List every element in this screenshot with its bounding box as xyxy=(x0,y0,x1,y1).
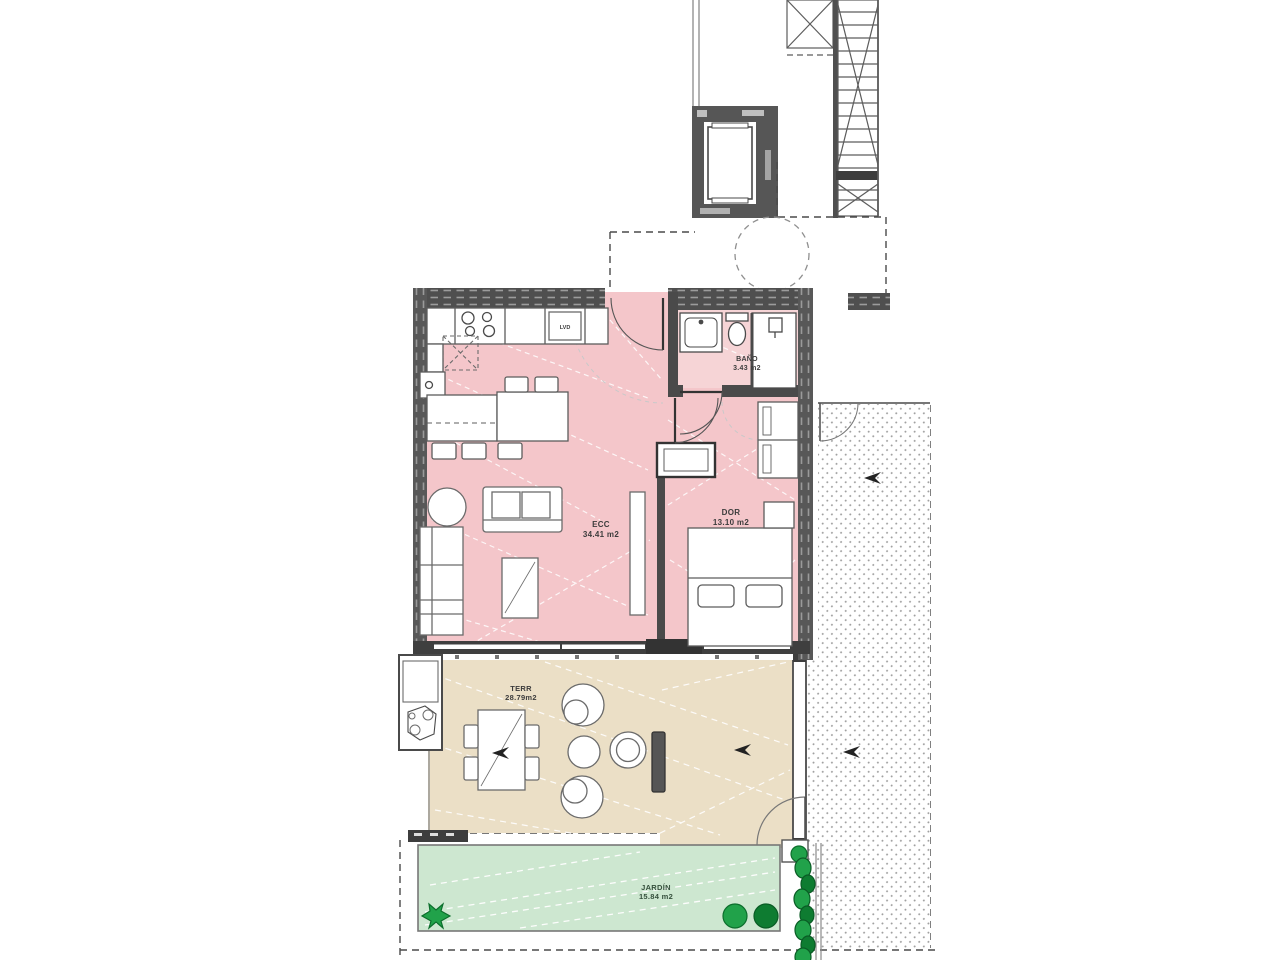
elevator-car xyxy=(708,127,752,199)
dining-chair xyxy=(432,443,456,459)
terrace-right-wall xyxy=(793,652,806,848)
elevator-door-2 xyxy=(712,198,748,203)
top-wall-fragment xyxy=(848,293,890,310)
outdoor-chair xyxy=(464,757,478,780)
garden-bush xyxy=(754,904,778,928)
pillow xyxy=(746,585,782,607)
wardrobe xyxy=(758,402,798,478)
lounge-chair xyxy=(568,736,600,768)
outdoor-chair xyxy=(525,725,539,748)
outdoor-chair xyxy=(464,725,478,748)
garden-area: 15.84 m2 xyxy=(639,892,673,901)
bathroom-area: 3.43 m2 xyxy=(733,365,761,372)
elevator-block xyxy=(692,106,778,218)
patio-circle xyxy=(735,217,809,291)
neighbor-dotted-area xyxy=(806,403,930,948)
dining-chair xyxy=(498,443,522,459)
dining-chair xyxy=(535,377,558,392)
pillow xyxy=(698,585,734,607)
floorplan-drawing: ECC 34.41 m2 DOR 13.10 m2 BAÑO 3.43 m2 T… xyxy=(0,0,1280,960)
planter xyxy=(652,732,665,792)
terrace-label: TERR xyxy=(510,684,532,693)
stair-landing xyxy=(836,171,878,180)
bath-west-wall xyxy=(668,292,678,390)
side-table-top xyxy=(617,739,640,762)
bed xyxy=(688,528,792,646)
living-area: 34.41 m2 xyxy=(583,530,619,539)
garden-label: JARDÍN xyxy=(641,883,671,892)
dining-table xyxy=(497,392,568,441)
sofa xyxy=(483,487,562,532)
shower xyxy=(752,313,796,388)
washer-label: LVD xyxy=(560,325,571,331)
living-label: ECC xyxy=(592,520,610,529)
lounge-cushion xyxy=(563,779,587,803)
round-chair xyxy=(428,488,466,526)
kitchen-island xyxy=(427,395,497,441)
tv-unit xyxy=(630,492,645,615)
stair-wall xyxy=(833,0,838,218)
elevator-door xyxy=(712,123,748,128)
terrace xyxy=(408,652,806,848)
terrace-area: 28.79m2 xyxy=(505,693,537,702)
window-sill xyxy=(428,654,793,660)
lounge-cushion xyxy=(564,700,588,724)
dining-chair xyxy=(505,377,528,392)
floorplan-page: ECC 34.41 m2 DOR 13.10 m2 BAÑO 3.43 m2 T… xyxy=(0,0,1280,960)
garden-bush xyxy=(723,904,747,928)
top-wall-left xyxy=(413,288,605,310)
right-wall xyxy=(798,288,813,660)
nightstand xyxy=(764,502,794,528)
bathroom-label: BAÑO xyxy=(736,354,758,363)
utility-closet xyxy=(399,655,442,750)
counter-return xyxy=(427,344,443,372)
bedroom-area: 13.10 m2 xyxy=(713,518,749,527)
dining-chair xyxy=(462,443,486,459)
washbasin xyxy=(680,313,722,352)
shelf-unit xyxy=(420,527,463,635)
bedroom-label: DOR xyxy=(722,508,741,517)
outdoor-chair xyxy=(525,757,539,780)
dresser xyxy=(657,443,715,477)
top-wall-right xyxy=(668,288,813,310)
upper-wall-line xyxy=(693,0,699,108)
upper-staircase xyxy=(787,0,878,218)
